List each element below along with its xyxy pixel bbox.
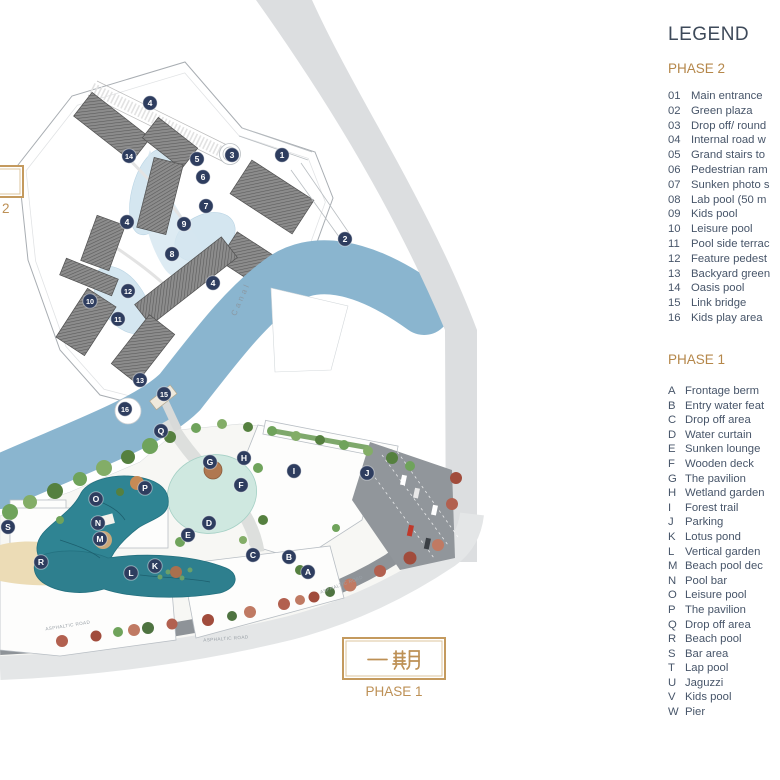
legend-item-key: 14 [668, 281, 691, 296]
legend-item: RBeach pool [668, 632, 765, 647]
legend-item: 07Sunken photo s [668, 178, 770, 193]
legend-item-key: 15 [668, 296, 691, 311]
phase1-chinese-glyphs [365, 646, 423, 672]
phase2-label-box [0, 165, 24, 198]
marker-label: N [95, 518, 101, 528]
marker-p1-D: D [202, 516, 216, 530]
marker-p2-2: 2 [338, 232, 352, 246]
legend-item: 14Oasis pool [668, 281, 770, 296]
legend-item-key: 08 [668, 193, 691, 208]
marker-label: 7 [204, 201, 209, 211]
marker-p2-10: 10 [83, 294, 97, 308]
marker-p1-M: M [93, 532, 107, 546]
legend-item-label: Pool side terrac [691, 238, 770, 250]
marker-label: 11 [114, 315, 122, 324]
legend-item-key: S [668, 647, 685, 662]
marker-label: K [152, 561, 159, 571]
marker-p2-11: 11 [111, 312, 125, 326]
lotus-deck [170, 566, 182, 578]
marker-p2-6: 6 [196, 170, 210, 184]
marker-label: P [142, 483, 148, 493]
marker-label: 12 [124, 287, 132, 296]
legend-item: 08Lab pool (50 m [668, 193, 770, 208]
legend-item: 12Feature pedest [668, 252, 770, 267]
legend-item-label: Lap pool [685, 662, 728, 674]
legend-item: PThe pavilion [668, 603, 765, 618]
marker-p2-16: 16 [118, 402, 132, 416]
marker-p1-I: I [287, 464, 301, 478]
marker-p2-8: 8 [165, 247, 179, 261]
legend-item-label: Main entrance [691, 90, 763, 102]
legend-item-key: C [668, 413, 685, 428]
legend-title: LEGEND [668, 24, 749, 46]
legend-item-label: The pavilion [685, 604, 746, 616]
marker-p2-4: 4 [143, 96, 157, 110]
legend-item-key: 02 [668, 104, 691, 119]
marker-p2-14: 14 [122, 149, 136, 163]
marker-label: 13 [136, 376, 144, 385]
marker-p1-L: L [124, 566, 138, 580]
legend-item-label: Feature pedest [691, 253, 767, 265]
legend-item-key: N [668, 574, 685, 589]
legend-item-label: Backyard green [691, 268, 770, 280]
legend-item: FWooden deck [668, 457, 765, 472]
legend-item-label: Jaguzzi [685, 677, 723, 689]
legend-item: 13Backyard green [668, 267, 770, 282]
legend-item-key: 05 [668, 148, 691, 163]
legend-item: SBar area [668, 647, 765, 662]
marker-label: J [365, 468, 370, 478]
legend-item: QDrop off area [668, 618, 765, 633]
marker-p2-4: 4 [206, 276, 220, 290]
legend-item: OLeisure pool [668, 588, 765, 603]
phase1-label-caption: PHASE 1 [342, 684, 446, 699]
marker-p2-15: 15 [157, 387, 171, 401]
legend-item-key: Q [668, 618, 685, 633]
legend-item: JParking [668, 515, 765, 530]
marker-label: R [38, 557, 45, 567]
legend-item: ESunken lounge [668, 442, 765, 457]
legend-panel: LEGEND PHASE 2 01Main entrance02Green pl… [668, 0, 780, 780]
legend-item-key: 16 [668, 311, 691, 326]
marker-label: F [238, 480, 243, 490]
legend-phase2-list: 01Main entrance02Green plaza03Drop off/ … [668, 89, 770, 326]
legend-item: 04Internal road w [668, 133, 770, 148]
legend-item-label: Vertical garden [685, 546, 760, 558]
legend-item-key: E [668, 442, 685, 457]
marker-p1-K: K [148, 559, 162, 573]
legend-item-label: Beach pool dec [685, 560, 763, 572]
legend-item-key: 03 [668, 119, 691, 134]
marker-p2-9: 9 [177, 217, 191, 231]
legend-item-key: I [668, 501, 685, 516]
legend-item: WPier [668, 705, 765, 720]
legend-item: 01Main entrance [668, 89, 770, 104]
marker-label: I [293, 466, 295, 476]
marker-p2-3: 3 [225, 148, 239, 162]
legend-item-label: Drop off/ round [691, 120, 766, 132]
marker-p1-O: O [89, 492, 103, 506]
legend-item-label: Oasis pool [691, 282, 744, 294]
legend-item-key: M [668, 559, 685, 574]
legend-item: 11Pool side terrac [668, 237, 770, 252]
legend-item-key: R [668, 632, 685, 647]
marker-label: 4 [148, 98, 153, 108]
marker-label: 16 [121, 405, 129, 414]
legend-item-label: Wetland garden [685, 487, 765, 499]
marker-p1-S: S [1, 520, 15, 534]
legend-item-label: Entry water feat [685, 400, 764, 412]
legend-item-label: Pool bar [685, 575, 727, 587]
legend-item-label: Grand stairs to [691, 149, 765, 161]
marker-p1-A: A [301, 565, 315, 579]
marker-label: O [93, 494, 100, 504]
legend-item-key: 04 [668, 133, 691, 148]
marker-label: 3 [230, 150, 235, 160]
marker-label: G [207, 457, 214, 467]
marker-p2-12: 12 [121, 284, 135, 298]
marker-label: 10 [86, 297, 94, 306]
marker-label: B [286, 552, 292, 562]
legend-item-label: Pedestrian ram [691, 164, 768, 176]
legend-item-key: L [668, 545, 685, 560]
marker-p1-H: H [237, 451, 251, 465]
marker-p1-G: G [203, 455, 217, 469]
legend-item-label: Green plaza [691, 105, 753, 117]
site-plan-page: CanalASPHALTIC ROADASPHALTIC ROADASPHALT… [0, 0, 780, 780]
legend-item-label: Bar area [685, 648, 728, 660]
phase1-label-box: 一期 [342, 637, 446, 680]
legend-item: 10Leisure pool [668, 222, 770, 237]
legend-item-key: B [668, 399, 685, 414]
legend-item: DWater curtain [668, 428, 765, 443]
legend-item: 02Green plaza [668, 104, 770, 119]
legend-item-label: Leisure pool [685, 589, 747, 601]
legend-item-key: O [668, 588, 685, 603]
legend-item-label: Drop off area [685, 619, 751, 631]
marker-label: E [185, 530, 191, 540]
marker-label: 14 [125, 152, 133, 161]
marker-label: M [96, 534, 103, 544]
marker-p1-C: C [246, 548, 260, 562]
legend-item-label: Kids pool [691, 208, 737, 220]
legend-item-label: Kids pool [685, 691, 731, 703]
legend-item: AFrontage berm [668, 384, 765, 399]
legend-item: VKids pool [668, 690, 765, 705]
phase2-label-caption: PHASE 2 [0, 201, 24, 216]
legend-item-label: Lotus pond [685, 531, 741, 543]
marker-label: A [305, 567, 311, 577]
legend-item-key: F [668, 457, 685, 472]
legend-item: 16Kids play area [668, 311, 770, 326]
legend-item: LVertical garden [668, 545, 765, 560]
marker-p1-B: B [282, 550, 296, 564]
legend-item-label: Water curtain [685, 429, 752, 441]
marker-label: 2 [343, 234, 348, 244]
legend-item-label: Sunken lounge [685, 443, 760, 455]
legend-item-label: Leisure pool [691, 223, 753, 235]
legend-item-key: H [668, 486, 685, 501]
legend-phase2-heading: PHASE 2 [668, 61, 725, 76]
marker-label: D [206, 518, 212, 528]
legend-item-label: Frontage berm [685, 385, 759, 397]
legend-item-key: U [668, 676, 685, 691]
legend-item-key: D [668, 428, 685, 443]
legend-item: CDrop off area [668, 413, 765, 428]
legend-item-key: V [668, 690, 685, 705]
legend-item-key: 06 [668, 163, 691, 178]
legend-item-key: 13 [668, 267, 691, 282]
marker-p1-F: F [234, 478, 248, 492]
legend-item-key: 12 [668, 252, 691, 267]
legend-item-key: 09 [668, 207, 691, 222]
legend-item-key: 10 [668, 222, 691, 237]
legend-item-key: J [668, 515, 685, 530]
legend-item-label: The pavilion [685, 473, 746, 485]
legend-item-label: Pier [685, 706, 705, 718]
marker-p2-5: 5 [190, 152, 204, 166]
canal-bank-wedge [271, 288, 348, 372]
marker-label: H [241, 453, 247, 463]
legend-item: MBeach pool dec [668, 559, 765, 574]
marker-label: 9 [182, 219, 187, 229]
legend-item: 05Grand stairs to [668, 148, 770, 163]
legend-item-label: Lab pool (50 m [691, 194, 766, 206]
legend-item-key: 01 [668, 89, 691, 104]
legend-item-key: W [668, 705, 685, 720]
marker-p1-P: P [138, 481, 152, 495]
legend-item-key: P [668, 603, 685, 618]
legend-item: HWetland garden [668, 486, 765, 501]
legend-item: GThe pavilion [668, 472, 765, 487]
legend-item-key: A [668, 384, 685, 399]
legend-item-label: Internal road w [691, 134, 766, 146]
legend-item: BEntry water feat [668, 399, 765, 414]
legend-phase1-list: AFrontage bermBEntry water featCDrop off… [668, 384, 765, 720]
marker-p2-4: 4 [120, 215, 134, 229]
marker-p2-7: 7 [199, 199, 213, 213]
marker-label: S [5, 522, 11, 532]
marker-label: 6 [201, 172, 206, 182]
legend-item: TLap pool [668, 661, 765, 676]
legend-phase1-heading: PHASE 1 [668, 352, 725, 367]
legend-item: 03Drop off/ round [668, 119, 770, 134]
marker-label: 5 [195, 154, 200, 164]
marker-p1-N: N [91, 516, 105, 530]
legend-item-label: Sunken photo s [691, 179, 770, 191]
marker-p2-13: 13 [133, 373, 147, 387]
legend-item-key: 11 [668, 237, 691, 252]
marker-label: 15 [160, 390, 168, 399]
legend-item-label: Parking [685, 516, 723, 528]
legend-item-label: Kids play area [691, 312, 763, 324]
legend-item-label: Drop off area [685, 414, 751, 426]
legend-item-key: 07 [668, 178, 691, 193]
legend-item: 06Pedestrian ram [668, 163, 770, 178]
marker-label: 8 [170, 249, 175, 259]
marker-label: Q [158, 426, 165, 436]
legend-item: 09Kids pool [668, 207, 770, 222]
legend-item: NPool bar [668, 574, 765, 589]
marker-label: L [128, 568, 133, 578]
marker-label: 4 [125, 217, 130, 227]
legend-item-label: Link bridge [691, 297, 746, 309]
marker-label: C [250, 550, 256, 560]
marker-p1-J: J [360, 466, 374, 480]
legend-item-key: K [668, 530, 685, 545]
legend-item: KLotus pond [668, 530, 765, 545]
legend-item-key: G [668, 472, 685, 487]
marker-p1-E: E [181, 528, 195, 542]
marker-label: 1 [280, 150, 285, 160]
marker-label: 4 [211, 278, 216, 288]
legend-item-label: Forest trail [685, 502, 738, 514]
marker-p2-1: 1 [275, 148, 289, 162]
legend-item-label: Beach pool [685, 633, 742, 645]
marker-p1-Q: Q [154, 424, 168, 438]
legend-item-label: Wooden deck [685, 458, 754, 470]
legend-item: IForest trail [668, 501, 765, 516]
legend-item: UJaguzzi [668, 676, 765, 691]
marker-p1-R: R [34, 555, 48, 569]
legend-item: 15Link bridge [668, 296, 770, 311]
legend-item-key: T [668, 661, 685, 676]
